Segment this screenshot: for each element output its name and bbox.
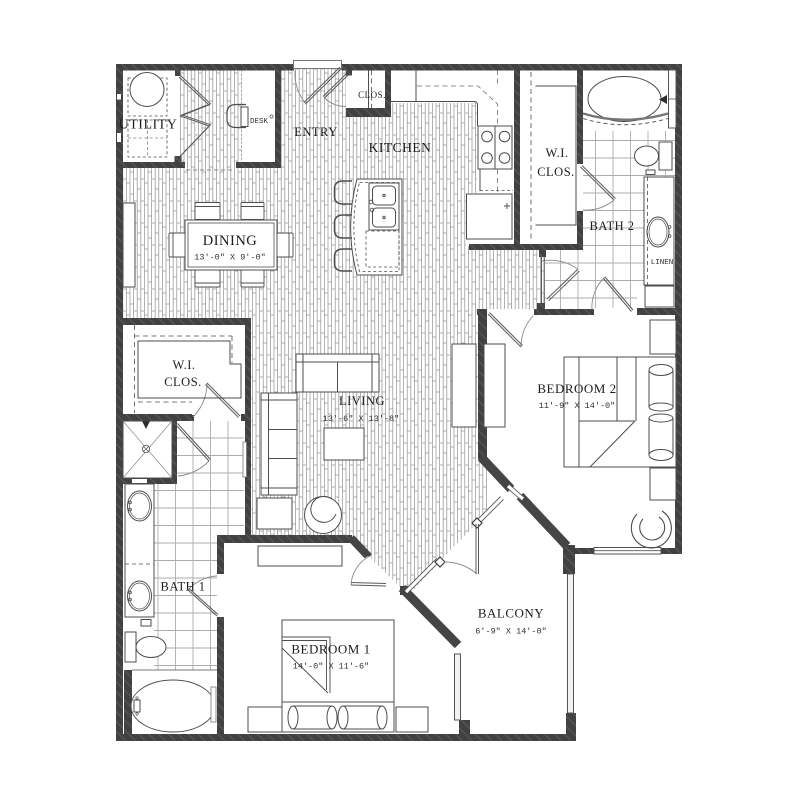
svg-text:CLOS.: CLOS. xyxy=(358,90,386,100)
svg-text:ENTRY: ENTRY xyxy=(294,125,337,139)
svg-text:BATH 2: BATH 2 xyxy=(589,219,634,233)
svg-text:UTILITY: UTILITY xyxy=(119,118,178,133)
svg-text:BALCONY: BALCONY xyxy=(478,606,544,621)
svg-text:CLOS.: CLOS. xyxy=(537,165,575,179)
svg-text:14'-0" X 11'-6": 14'-0" X 11'-6" xyxy=(293,662,370,672)
svg-text:6'-9" X 14'-0": 6'-9" X 14'-0" xyxy=(475,627,546,637)
svg-text:DESK: DESK xyxy=(250,118,269,126)
svg-text:BEDROOM 2: BEDROOM 2 xyxy=(537,381,616,396)
svg-text:LINEN: LINEN xyxy=(651,259,674,267)
svg-text:KITCHEN: KITCHEN xyxy=(369,140,432,155)
svg-text:13'-0" X 9'-0": 13'-0" X 9'-0" xyxy=(194,253,265,263)
svg-text:BEDROOM 1: BEDROOM 1 xyxy=(291,642,370,657)
svg-text:W.I.: W.I. xyxy=(545,146,568,160)
svg-text:W.I.: W.I. xyxy=(172,358,195,372)
svg-text:LIVING: LIVING xyxy=(339,394,385,408)
svg-text:13'-6" X 13'-8": 13'-6" X 13'-8" xyxy=(323,414,400,424)
svg-text:BATH 1: BATH 1 xyxy=(160,580,205,594)
svg-text:CLOS.: CLOS. xyxy=(164,375,202,389)
svg-text:DINING: DINING xyxy=(203,233,258,249)
svg-text:11'-9" X 14'-0": 11'-9" X 14'-0" xyxy=(539,401,616,411)
